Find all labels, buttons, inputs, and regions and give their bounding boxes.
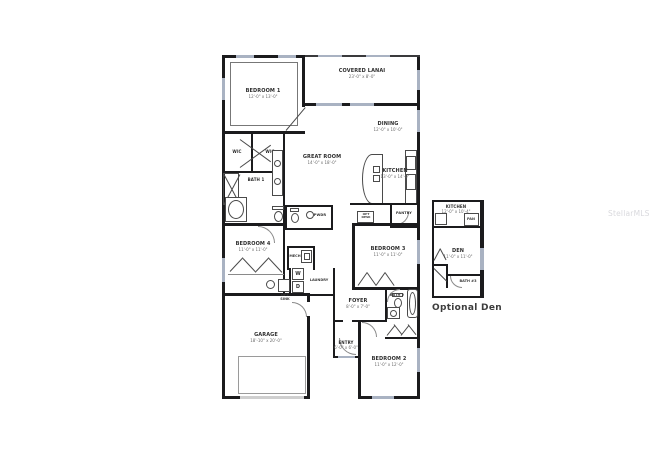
floor-plan-canvas: BEDROOM 1 12'-0" x 13'-0" COVERED LANAI …: [0, 0, 650, 450]
opt-sink-box: [278, 279, 290, 292]
bedroom4-closet-shelf: [228, 274, 284, 275]
dining-label: DINING 12'-0" x 10'-0": [374, 121, 403, 132]
garage-service-door-arc: [292, 302, 307, 317]
bath1-toilet-tank: [272, 206, 284, 210]
bath2-name: BATH 2: [390, 293, 404, 297]
inset-window-right: [480, 248, 484, 270]
wall-entry-left: [333, 320, 335, 358]
wall-mech-top: [287, 246, 315, 248]
kitchen-name: KITCHEN: [382, 168, 407, 174]
dining-name: DINING: [378, 121, 399, 127]
bedroom4-bifold-1: [230, 257, 244, 272]
wall-bedroom1-right: [302, 55, 305, 107]
inset-den-label: DEN 11'-0" x 11'-0": [444, 248, 473, 259]
dryer-box: D: [292, 281, 304, 293]
kitchen-label: KITCHEN 13'-0" x 14'-0": [381, 168, 410, 179]
pantry-label: PANTRY: [396, 211, 412, 215]
kitchen-dims: 13'-0" x 14'-0": [381, 174, 410, 179]
wic-left-name: WIC: [232, 149, 241, 154]
pwdr-toilet-tank: [290, 208, 299, 212]
wall-pwdr-right: [331, 205, 333, 230]
bath2-label: BATH 2: [390, 293, 404, 297]
wall-bedroom3-top: [352, 223, 420, 226]
bedroom3-bifold-1: [358, 272, 368, 286]
mech-label: MECH: [289, 254, 300, 258]
washer-box: W: [292, 268, 304, 280]
bedroom2-door-arc: [362, 322, 377, 337]
garage-name: GARAGE: [254, 332, 278, 338]
window-dining-right: [417, 110, 420, 132]
optional-den-caption-text: Optional Den: [432, 303, 502, 313]
wall-laundry-bottom: [289, 294, 335, 296]
mech-name: MECH: [289, 254, 300, 258]
foyer-dims: 8'-0" x 7'-0": [346, 304, 370, 309]
mech-equipment-inner: [304, 253, 310, 260]
window-bedroom4-left: [222, 258, 225, 282]
wall-kitchen-bottom: [350, 203, 419, 205]
window-bedroom3-right: [417, 240, 420, 264]
laundry-label: LAUNDRY: [310, 278, 329, 282]
dryer-letter: D: [296, 284, 300, 290]
inset-den-bifold-1: [434, 249, 441, 261]
kitchen-island-sink-2: [373, 175, 380, 182]
pwdr-name: PWDR: [314, 213, 326, 217]
bedroom3-label: BEDROOM 3 11'-0" x 11'-0": [371, 246, 406, 257]
garage-label: GARAGE 18'-10" x 20'-0": [250, 332, 282, 343]
bedroom4-dims: 11'-0" x 11'-0": [236, 247, 271, 252]
garage-door-opening: [240, 396, 304, 399]
wall-bedroom3-left: [352, 223, 355, 290]
bath1-toilet-bowl: [274, 211, 283, 222]
bedroom3-name: BEDROOM 3: [371, 246, 406, 252]
entry-dims: 6'-0" x 6'-0": [334, 345, 358, 350]
wall-bedroom1-bottom: [222, 131, 305, 134]
window-bedroom1-left: [222, 78, 225, 100]
wall-bath1-bottom: [222, 223, 285, 226]
bedroom1-label: BEDROOM 1 12'-0" x 13'-0": [246, 88, 281, 99]
inset-pan-name: PAN: [467, 217, 475, 221]
wall-pantry-bottom: [390, 226, 419, 228]
window-lanai-slider-1: [316, 103, 342, 106]
inset-wall-bottom: [432, 296, 484, 298]
foyer-name: FOYER: [349, 298, 368, 304]
wall-foyer-left: [333, 290, 335, 320]
inset-bath3-name: BATH #3: [459, 279, 476, 283]
bedroom4-label: BEDROOM 4 11'-0" x 11'-0": [236, 241, 271, 252]
inset-pan-label: PAN: [467, 217, 475, 221]
bedroom2-bifold-4: [408, 324, 417, 335]
bath1-sink-1: [274, 160, 281, 167]
dining-dims: 12'-0" x 10'-0": [374, 127, 403, 132]
great-room-dims: 14'-0" x 18'-0": [303, 160, 341, 165]
opt-sink-label: OPT SINK: [278, 293, 292, 301]
garage-dims: 18'-10" x 20'-0": [250, 338, 282, 343]
wall-left-exterior: [222, 55, 225, 399]
bath1-label: BATH 1: [248, 177, 265, 182]
window-lanai-right: [417, 70, 420, 90]
wall-pwdr-top: [285, 205, 333, 207]
inset-wall-left: [432, 200, 434, 298]
wall-pwdr-left: [285, 205, 287, 228]
bedroom4-bifold-2: [243, 258, 257, 273]
window-bedroom1-top-1: [236, 55, 254, 58]
bedroom4-bifold-4: [269, 258, 283, 273]
opt-sink-name: OPT SINK: [280, 293, 289, 301]
inset-wall-top: [432, 200, 482, 202]
entry-door-threshold: [338, 356, 355, 358]
garage-door-gap: [307, 302, 310, 316]
wall-bedroom2-left: [358, 320, 361, 399]
kitchen-island-sink-1: [373, 166, 380, 173]
inset-den-dims: 11'-0" x 11'-0": [444, 254, 473, 259]
wall-bedroom2-closet-bottom: [385, 337, 419, 339]
inset-closet-right: [446, 264, 448, 288]
inset-bath3-label: BATH #3: [459, 279, 476, 283]
bedroom2-name: BEDROOM 2: [372, 356, 407, 362]
wall-wic-divider: [251, 133, 253, 171]
bedroom4-name: BEDROOM 4: [236, 241, 271, 247]
window-lanai-top-1: [318, 55, 342, 57]
garage-door-panel: [238, 356, 306, 394]
lanai-name: COVERED LANAI: [339, 68, 386, 74]
window-bedroom2-right: [417, 348, 420, 372]
wall-pwdr-bottom: [285, 228, 333, 230]
bath1-vanity: [272, 150, 283, 196]
foyer-label: FOYER 8'-0" x 7'-0": [346, 298, 370, 309]
laundry-name: LAUNDRY: [310, 278, 329, 282]
wic-left-label: WIC: [232, 149, 241, 154]
window-lanai-slider-2: [350, 103, 374, 106]
inset-wall-kitchen-bottom: [432, 226, 482, 228]
bath1-name: BATH 1: [248, 177, 265, 182]
pwdr-label: PWDR: [314, 213, 326, 217]
bedroom3-bifold-3: [376, 272, 386, 286]
inset-kitchen-box: [435, 213, 447, 225]
lanai-dims: 23'-0" x 8'-0": [339, 74, 386, 79]
bedroom2-label: BEDROOM 2 11'-0" x 12'-0": [372, 356, 407, 367]
bath2-tub-basin: [409, 292, 416, 315]
pwdr-toilet-bowl: [291, 213, 299, 223]
bedroom1-dims: 12'-0" x 13'-0": [246, 94, 281, 99]
bedroom3-dims: 11'-0" x 11'-0": [371, 252, 406, 257]
entry-label: ENTRY 6'-0" x 6'-0": [334, 340, 358, 350]
lanai-label: COVERED LANAI 23'-0" x 8'-0": [339, 68, 386, 79]
bedroom3-bifold-4: [385, 272, 395, 286]
bedroom2-dims: 11'-0" x 12'-0": [372, 362, 407, 367]
hall-fixture-circle: [266, 280, 275, 289]
wall-mech-right: [313, 246, 315, 270]
bath1-tub-basin: [228, 200, 244, 219]
opt-desk-label: OPT DESK: [358, 213, 374, 220]
pantry-name: PANTRY: [396, 211, 412, 215]
bath2-sink: [390, 310, 397, 317]
washer-letter: W: [295, 271, 301, 277]
window-bedroom1-top-2: [278, 55, 296, 58]
bedroom1-name: BEDROOM 1: [246, 88, 281, 94]
window-lanai-top-2: [366, 55, 390, 57]
stellar-mls-watermark: StellarMLS: [608, 209, 650, 218]
inset-den-name: DEN: [452, 248, 464, 254]
great-room-label: GREAT ROOM 14'-0" x 18'-0": [303, 154, 341, 165]
great-room-name: GREAT ROOM: [303, 154, 341, 160]
optional-den-caption: Optional Den: [432, 303, 502, 313]
watermark-text: StellarMLS: [608, 209, 650, 218]
opt-desk-name: OPT DESK: [361, 212, 370, 219]
window-bedroom2-bottom: [372, 396, 394, 399]
bedroom4-bifold-3: [256, 257, 270, 272]
bath1-sink-2: [274, 178, 281, 185]
